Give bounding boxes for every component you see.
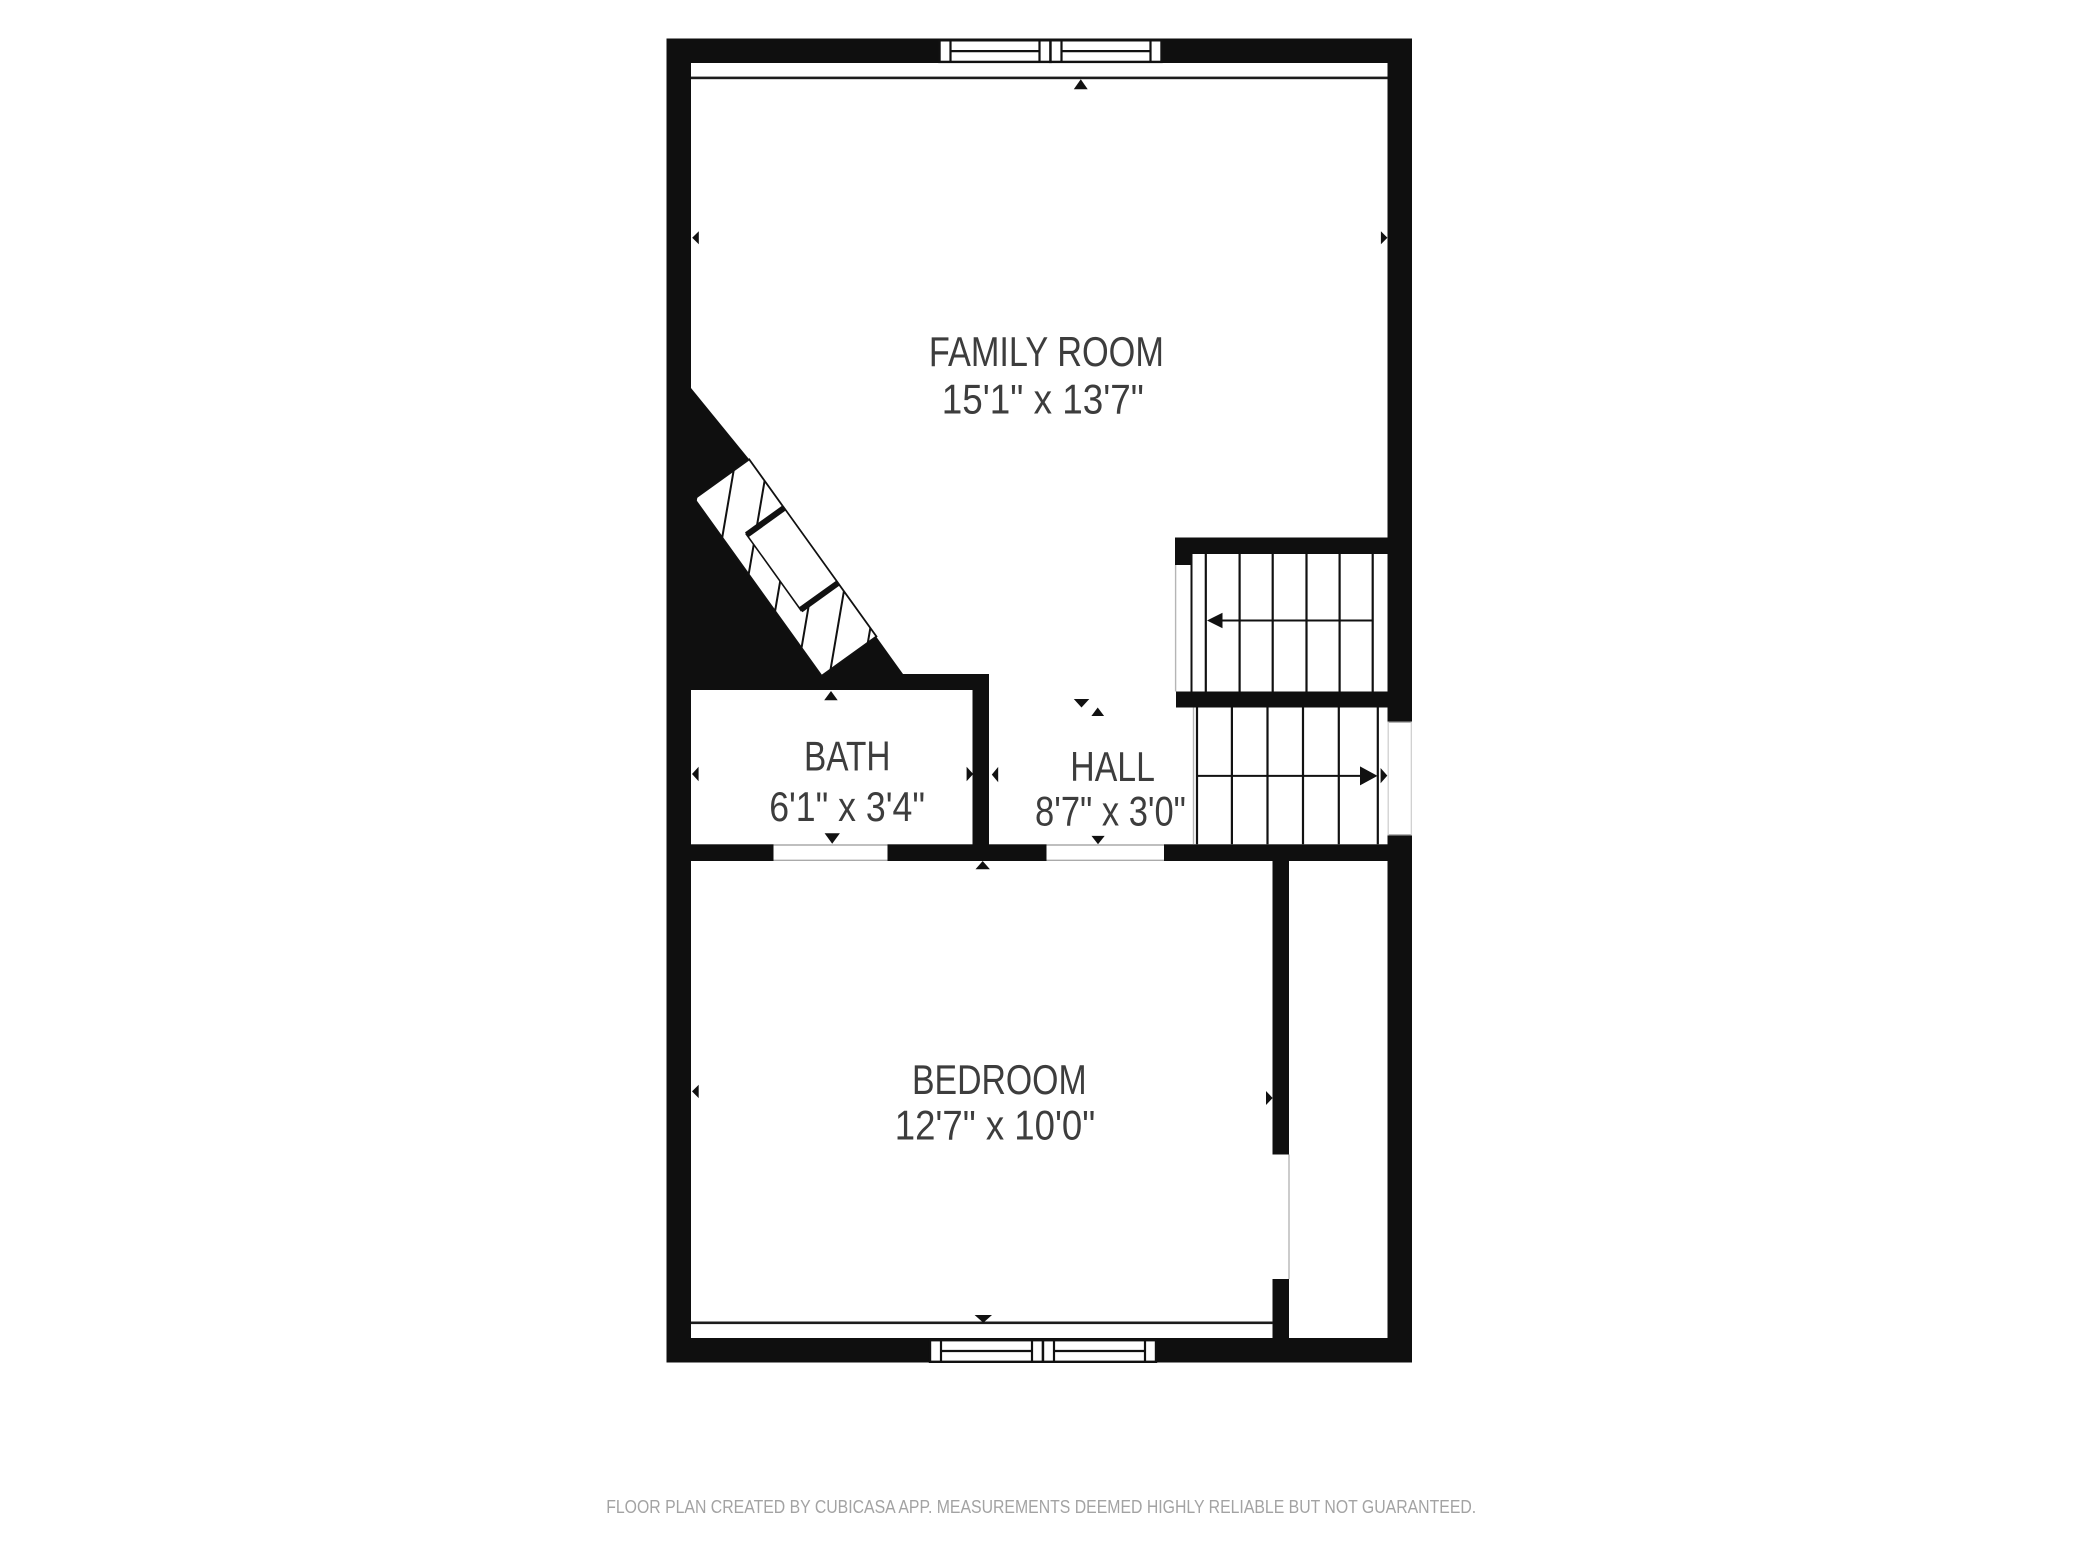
svg-text:6'1" x 3'4": 6'1" x 3'4" (769, 783, 925, 830)
svg-text:8'7" x 3'0": 8'7" x 3'0" (1035, 787, 1186, 834)
svg-text:FLOOR PLAN CREATED BY CUBICASA: FLOOR PLAN CREATED BY CUBICASA APP. MEAS… (606, 1496, 1476, 1517)
svg-text:BATH: BATH (804, 733, 891, 780)
svg-text:15'1" x 13'7": 15'1" x 13'7" (942, 376, 1144, 423)
svg-text:BEDROOM: BEDROOM (912, 1056, 1087, 1103)
svg-text:12'7" x 10'0": 12'7" x 10'0" (895, 1102, 1096, 1149)
svg-text:HALL: HALL (1070, 743, 1155, 790)
svg-text:FAMILY ROOM: FAMILY ROOM (929, 328, 1164, 375)
